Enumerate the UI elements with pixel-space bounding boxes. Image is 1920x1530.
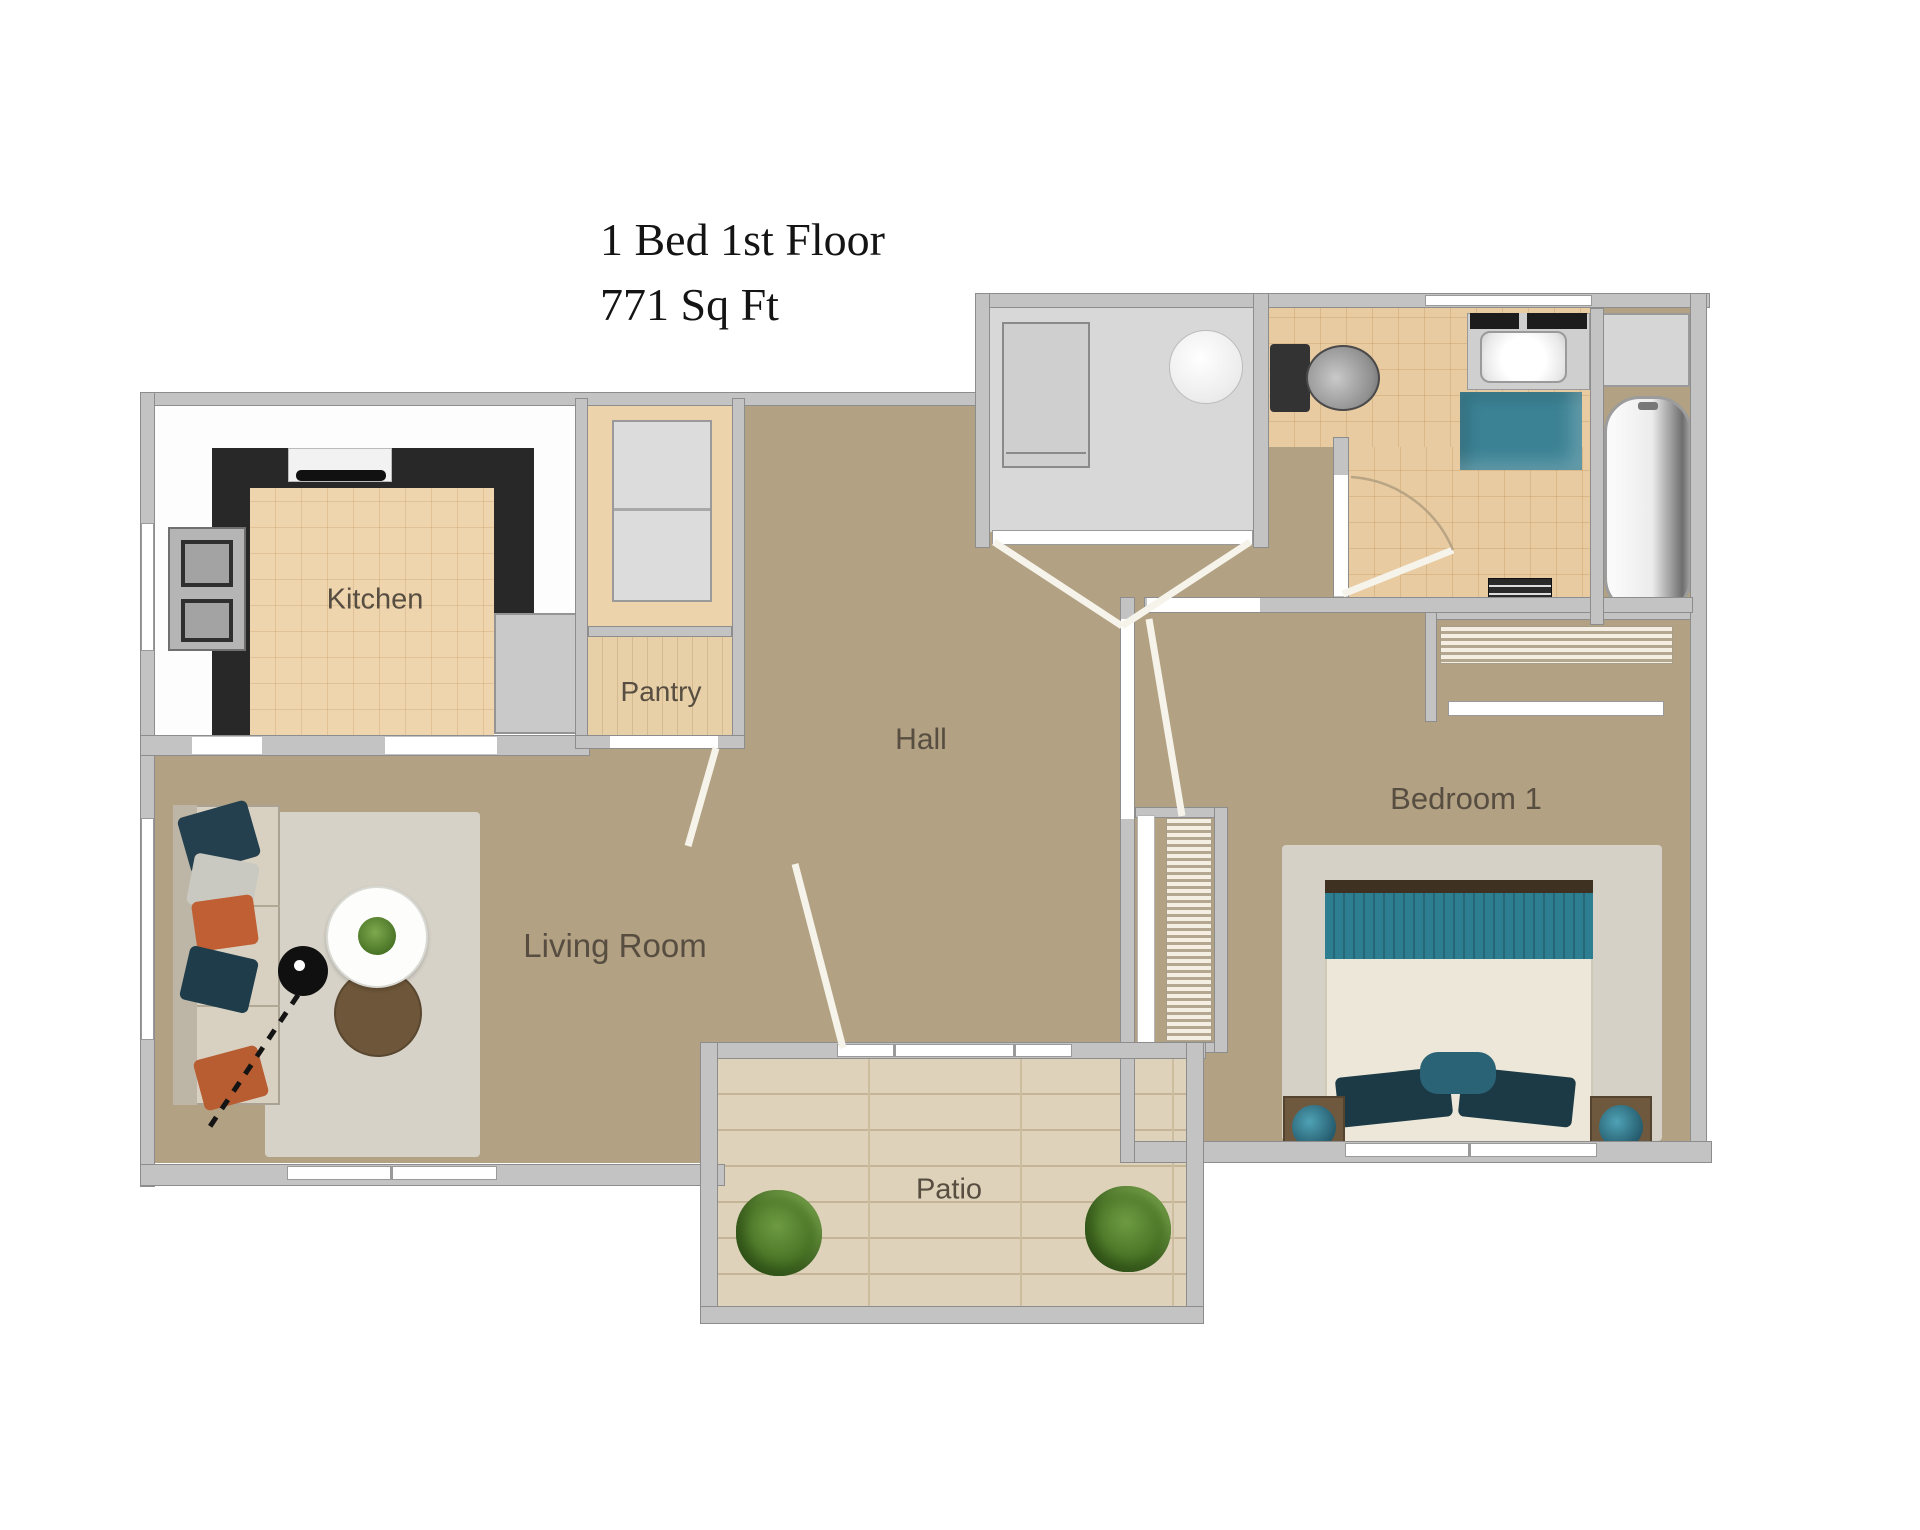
vanity-backsplash-gap xyxy=(1519,313,1527,329)
bathtub-icon xyxy=(1604,396,1692,614)
floor-lamp-icon xyxy=(278,946,328,996)
pantry-door-opening xyxy=(610,736,718,748)
linen-closet-sliding-door xyxy=(1448,701,1664,716)
living-room-label: Living Room xyxy=(523,927,706,965)
wall-right-outer xyxy=(1690,293,1707,1163)
patio-door-divider1 xyxy=(893,1044,896,1057)
wall-tub-left xyxy=(1590,308,1604,625)
bedroom-label: Bedroom 1 xyxy=(1390,781,1542,817)
kitchen-opening-main xyxy=(385,737,497,754)
wall-utility-left xyxy=(975,293,990,548)
bath-rug xyxy=(1460,392,1582,470)
sink-basin xyxy=(1480,331,1567,383)
patio-label: Patio xyxy=(916,1174,982,1207)
window-kitchen-left xyxy=(141,523,154,651)
fridge-icon xyxy=(494,613,579,734)
stove-burner-top xyxy=(181,540,233,587)
stove-burner-bottom xyxy=(181,599,233,642)
bath-shelf-closet xyxy=(1597,313,1690,387)
wardrobe-shelves xyxy=(1166,818,1212,1042)
bed-pillow-center xyxy=(1420,1052,1496,1094)
pantry-label: Pantry xyxy=(621,676,702,708)
vanity-backsplash xyxy=(1470,313,1587,329)
toilet-bowl xyxy=(1306,345,1380,411)
wall-pantry-right xyxy=(732,398,745,748)
wall-patio-right xyxy=(1186,1042,1204,1324)
bedroom-corner-opening-top xyxy=(1147,598,1260,612)
patio-door-divider2 xyxy=(1013,1044,1016,1057)
bath-door-opening xyxy=(1334,475,1348,596)
bedroom-door-opening xyxy=(1121,619,1134,819)
wardrobe-door xyxy=(1137,815,1155,1045)
plan-title: 1 Bed 1st Floor 771 Sq Ft xyxy=(600,207,885,338)
pantry-mid-wall xyxy=(588,626,732,637)
utility-door-track xyxy=(992,530,1253,545)
wall-left-outer xyxy=(140,392,155,1187)
toilet-tank xyxy=(1270,344,1310,412)
window-bathroom-top xyxy=(1425,295,1592,306)
window-living-bottom-divider xyxy=(390,1166,393,1180)
wall-patio-left xyxy=(700,1042,718,1324)
window-bedroom-bottom-divider xyxy=(1468,1143,1471,1157)
linen-closet-wall-left xyxy=(1425,608,1437,722)
window-bedroom-bottom xyxy=(1345,1143,1597,1157)
kitchen-label: Kitchen xyxy=(327,584,424,617)
washer-lid-line xyxy=(1006,452,1086,454)
bathtub-faucet xyxy=(1638,402,1658,410)
patio-plant-right xyxy=(1085,1186,1171,1272)
linen-closet-shelves xyxy=(1440,626,1673,664)
water-heater-icon xyxy=(1169,330,1243,404)
pantry-shelf-divider xyxy=(614,508,710,511)
hall-label: Hall xyxy=(895,723,947,757)
patio-plant-left xyxy=(736,1190,822,1276)
plan-title-line1: 1 Bed 1st Floor xyxy=(600,207,885,272)
wall-top-right xyxy=(975,293,1710,308)
wall-utility-right xyxy=(1253,293,1269,548)
wall-top-left xyxy=(140,392,985,406)
kitchen-counter-right xyxy=(494,448,534,613)
pantry-shelf-unit xyxy=(612,420,712,602)
wardrobe-wall-right xyxy=(1214,807,1228,1053)
bed-footboard xyxy=(1325,880,1593,893)
washer-icon xyxy=(1002,322,1090,468)
kitchen-opening-left xyxy=(192,737,262,754)
bed-blanket-teal xyxy=(1325,893,1593,959)
floor-lamp-highlight xyxy=(294,960,305,971)
patio-door-band xyxy=(837,1044,1072,1057)
sofa-pillow-orange1 xyxy=(191,894,259,952)
plan-title-line2: 771 Sq Ft xyxy=(600,272,885,337)
wall-patio-bottom xyxy=(700,1306,1204,1324)
window-living-left xyxy=(141,818,154,1040)
floor-plan: 1 Bed 1st Floor 771 Sq Ft Kitchen Pantry… xyxy=(0,0,1920,1530)
kitchen-sink-front xyxy=(296,470,386,481)
table-plant-icon xyxy=(358,917,396,955)
wall-pantry-left xyxy=(575,398,588,748)
